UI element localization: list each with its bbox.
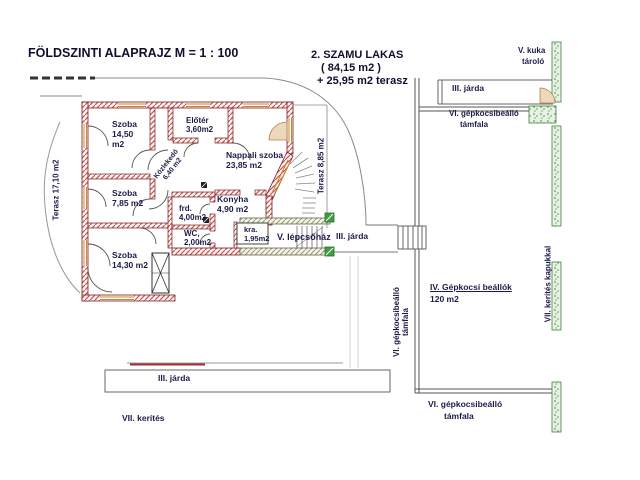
room-furdo-area: 4,00m2 (179, 213, 206, 222)
sidewalk-bottom-band (105, 370, 390, 392)
stairwell-label: V. lépcsőház (277, 232, 331, 242)
parking-label-line2: 120 m2 (430, 295, 459, 305)
room-szoba3-label: Szoba 14,30 m2 (112, 251, 148, 271)
room-furdo-name: frd. (179, 204, 206, 213)
carport-wall-top-label-line1: VI. gépkocsibeálló (449, 109, 519, 118)
room-szoba1-unit: m2 (112, 140, 137, 150)
page-title: FÖLDSZINTI ALAPRAJZ M = 1 : 100 (28, 46, 238, 60)
chimney-shaft-icon (152, 253, 169, 293)
fence-bottom-label: VII. kerítés (122, 414, 165, 424)
room-szoba2-area: 7,85 m2 (112, 199, 143, 209)
room-nappali-label: Nappali szoba 23,85 m2 (226, 151, 283, 171)
parking-label-line1: IV. Gépkocsi beállók (430, 283, 512, 293)
terrace-left-label: Terasz 17,10 m2 (51, 160, 60, 221)
room-wc-label: WC, 2,00m2 (184, 229, 211, 247)
room-eloter-area: 3,60m2 (186, 125, 213, 134)
room-eloter-name: Előtér (186, 116, 213, 125)
carport-wall-bottom-label-line1: VI. gépkocsibeálló (428, 400, 502, 410)
apartment-label-line3: + 25,95 m2 terasz (317, 75, 408, 88)
carport-wall-left-line2: támfala (401, 287, 410, 357)
carport-wall-bottom-label-line2: támfala (444, 412, 474, 422)
room-konyha-area: 4,90 m2 (217, 205, 248, 215)
room-szoba3-area: 14,30 m2 (112, 261, 148, 271)
sidewalk-top-label: III. járda (452, 84, 484, 94)
fence-right-label: VII. kerítés kapukkal (543, 246, 552, 323)
room-kamra-area: 1,95m2 (244, 235, 269, 244)
room-szoba1-label: Szoba 14,50 m2 (112, 120, 137, 149)
terrace-fan-stairs-icon (290, 152, 316, 213)
room-eloter-label: Előtér 3,60m2 (186, 116, 213, 134)
floor-plan-page: FÖLDSZINTI ALAPRAJZ M = 1 : 100 2. SZAMU… (0, 0, 640, 480)
room-konyha-label: Konyha 4,90 m2 (217, 195, 248, 215)
sidewalk-bottom-label: III. járda (158, 374, 190, 384)
terrace-right-label: Terasz 8,85 m2 (316, 138, 325, 194)
waste-storage-label-line2: tároló (522, 57, 544, 66)
room-szoba2-label: Szoba 7,85 m2 (112, 189, 143, 209)
apartment-label-line2: ( 84,15 m2 ) (321, 62, 381, 75)
carport-wall-top-label-line2: támfala (460, 120, 488, 129)
room-nappali-area: 23,85 m2 (226, 161, 283, 171)
room-wc-area: 2,00m2 (184, 238, 211, 247)
waste-storage-label-line1: V. kuka (518, 46, 545, 55)
terrace-door-arc (269, 122, 287, 140)
carport-wall-left-label: VI. gépkocsibeálló támfala (392, 287, 410, 357)
room-wc-name: WC, (184, 229, 211, 238)
carport-wall-left-line1: VI. gépkocsibeálló (392, 287, 401, 357)
room-furdo-label: frd. 4,00m2 (179, 204, 206, 222)
sidewalk-mid-label: III. járda (336, 232, 368, 242)
apartment-label-line1: 2. SZAMU LAKAS (311, 49, 403, 62)
site-stairs-icon (398, 226, 426, 249)
room-kamra-label: kra. 1,95m2 (244, 226, 269, 243)
